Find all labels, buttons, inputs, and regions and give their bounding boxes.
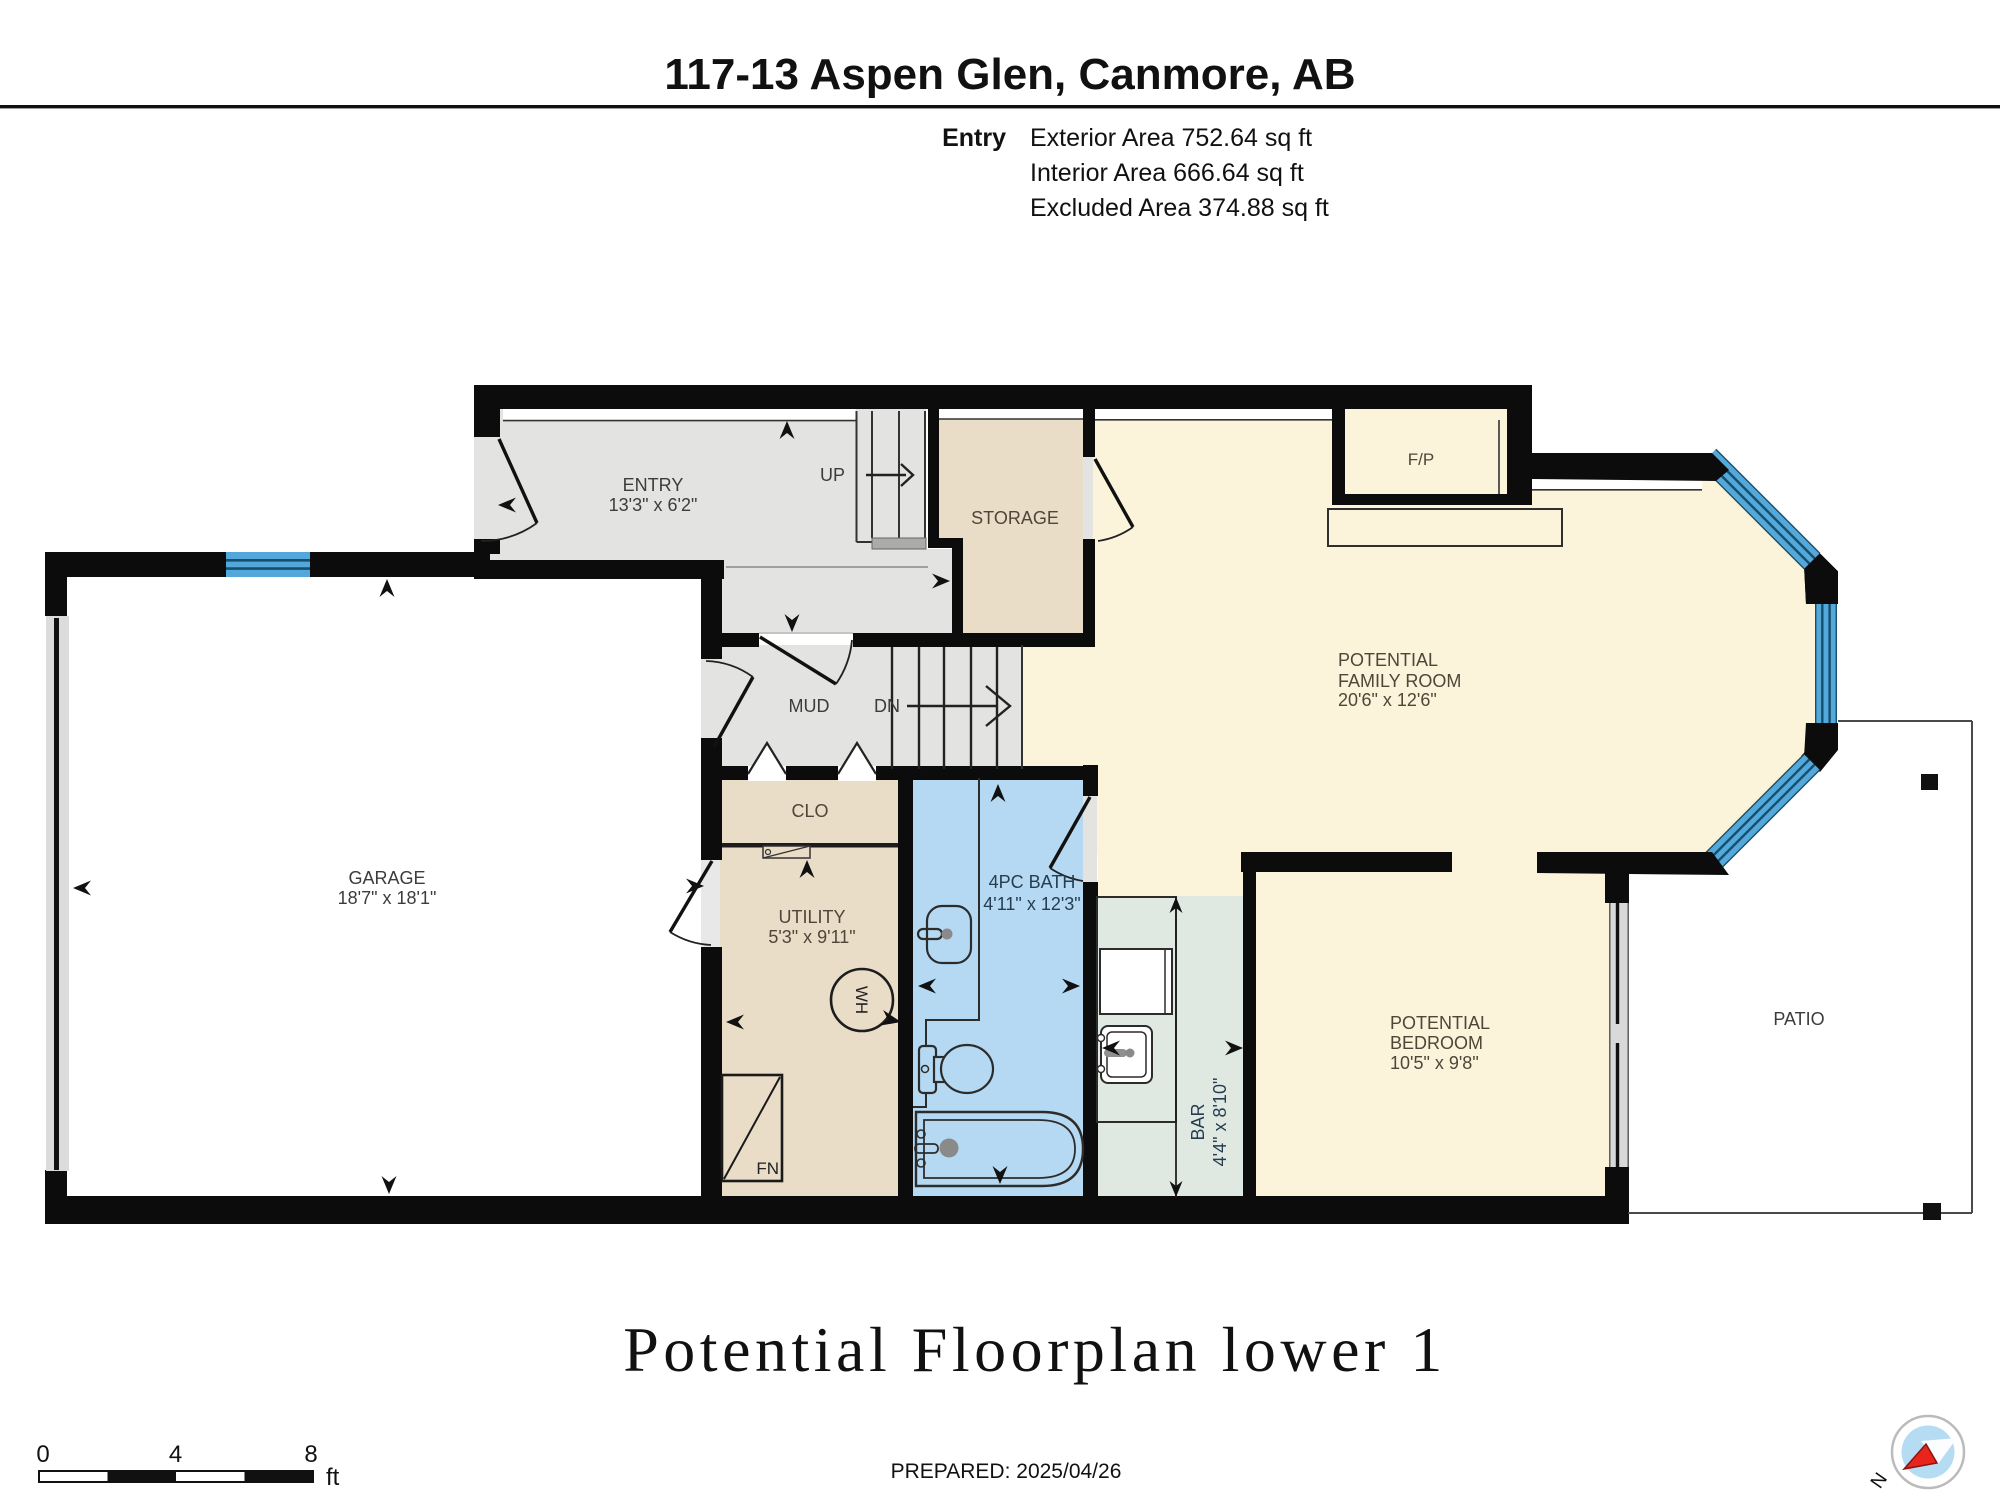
svg-text:10'5" x 9'8": 10'5" x 9'8"	[1390, 1053, 1479, 1073]
svg-text:20'6" x 12'6": 20'6" x 12'6"	[1338, 690, 1437, 710]
svg-text:FAMILY ROOM: FAMILY ROOM	[1338, 671, 1461, 691]
svg-text:Excluded Area 374.88 sq ft: Excluded Area 374.88 sq ft	[1030, 194, 1329, 222]
svg-text:4: 4	[169, 1441, 182, 1468]
svg-text:4PC BATH: 4PC BATH	[989, 872, 1076, 892]
svg-text:UTILITY: UTILITY	[778, 907, 845, 927]
svg-text:117-13 Aspen Glen, Canmore, AB: 117-13 Aspen Glen, Canmore, AB	[664, 50, 1355, 99]
svg-text:ft: ft	[326, 1464, 340, 1491]
svg-text:DN: DN	[874, 696, 900, 716]
svg-text:Interior Area 666.64 sq ft: Interior Area 666.64 sq ft	[1030, 159, 1304, 187]
svg-text:0: 0	[36, 1441, 49, 1468]
svg-text:4'11" x 12'3": 4'11" x 12'3"	[983, 894, 1080, 914]
svg-text:MUD: MUD	[789, 696, 830, 716]
svg-text:CLO: CLO	[791, 801, 828, 821]
svg-text:Entry: Entry	[942, 124, 1006, 152]
svg-text:PREPARED: 2025/04/26: PREPARED: 2025/04/26	[891, 1460, 1122, 1483]
svg-text:F/P: F/P	[1408, 450, 1434, 469]
svg-text:18'7" x 18'1": 18'7" x 18'1"	[338, 888, 437, 908]
svg-text:Exterior Area 752.64 sq ft: Exterior Area 752.64 sq ft	[1030, 124, 1312, 152]
svg-text:POTENTIAL: POTENTIAL	[1390, 1013, 1490, 1033]
svg-text:UP: UP	[820, 465, 845, 485]
svg-text:GARAGE: GARAGE	[348, 868, 425, 888]
svg-text:13'3" x 6'2": 13'3" x 6'2"	[609, 495, 698, 515]
svg-text:Potential Floorplan lower 1: Potential Floorplan lower 1	[623, 1314, 1447, 1385]
svg-text:PATIO: PATIO	[1773, 1009, 1824, 1029]
svg-text:WH: WH	[852, 986, 871, 1014]
svg-text:BEDROOM: BEDROOM	[1390, 1033, 1483, 1053]
svg-text:5'3" x 9'11": 5'3" x 9'11"	[768, 927, 855, 947]
svg-text:ENTRY: ENTRY	[623, 475, 684, 495]
svg-text:BAR: BAR	[1188, 1103, 1208, 1140]
svg-text:8: 8	[304, 1441, 317, 1468]
svg-text:POTENTIAL: POTENTIAL	[1338, 650, 1438, 670]
svg-text:FN: FN	[756, 1159, 779, 1178]
svg-text:4'4" x 8'10": 4'4" x 8'10"	[1210, 1078, 1230, 1167]
svg-text:STORAGE: STORAGE	[971, 508, 1059, 528]
